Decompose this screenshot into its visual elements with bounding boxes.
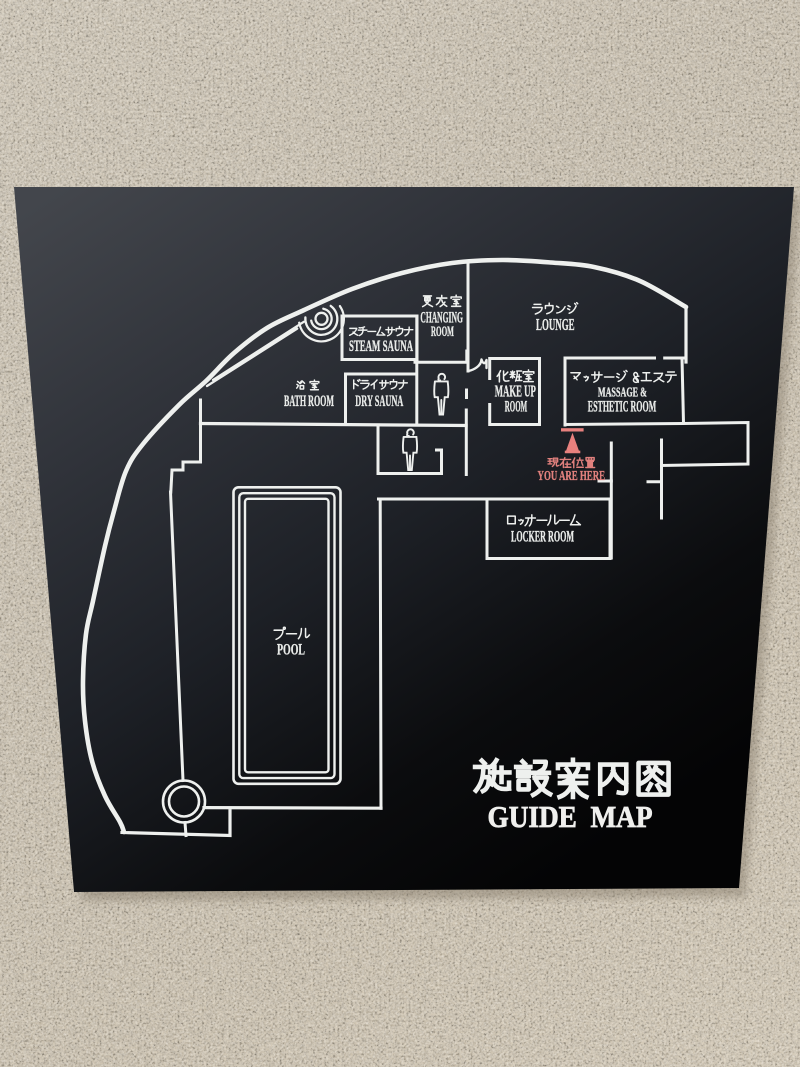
svg-text:GUIDE MAP: GUIDE MAP [488,799,653,834]
svg-text:ROOM: ROOM [431,324,454,340]
svg-text:BATH ROOM: BATH ROOM [284,393,334,410]
svg-text:YOU ARE HERE: YOU ARE HERE [538,468,606,483]
svg-text:ROOM: ROOM [505,399,528,416]
svg-text:LOUNGE: LOUNGE [536,315,575,334]
svg-text:DRY SAUNA: DRY SAUNA [355,393,403,410]
svg-text:ESTHETIC ROOM: ESTHETIC ROOM [588,398,657,415]
svg-text:LOCKER ROOM: LOCKER ROOM [511,529,574,546]
svg-text:STEAM SAUNA: STEAM SAUNA [349,338,413,355]
svg-text:POOL: POOL [277,642,305,659]
